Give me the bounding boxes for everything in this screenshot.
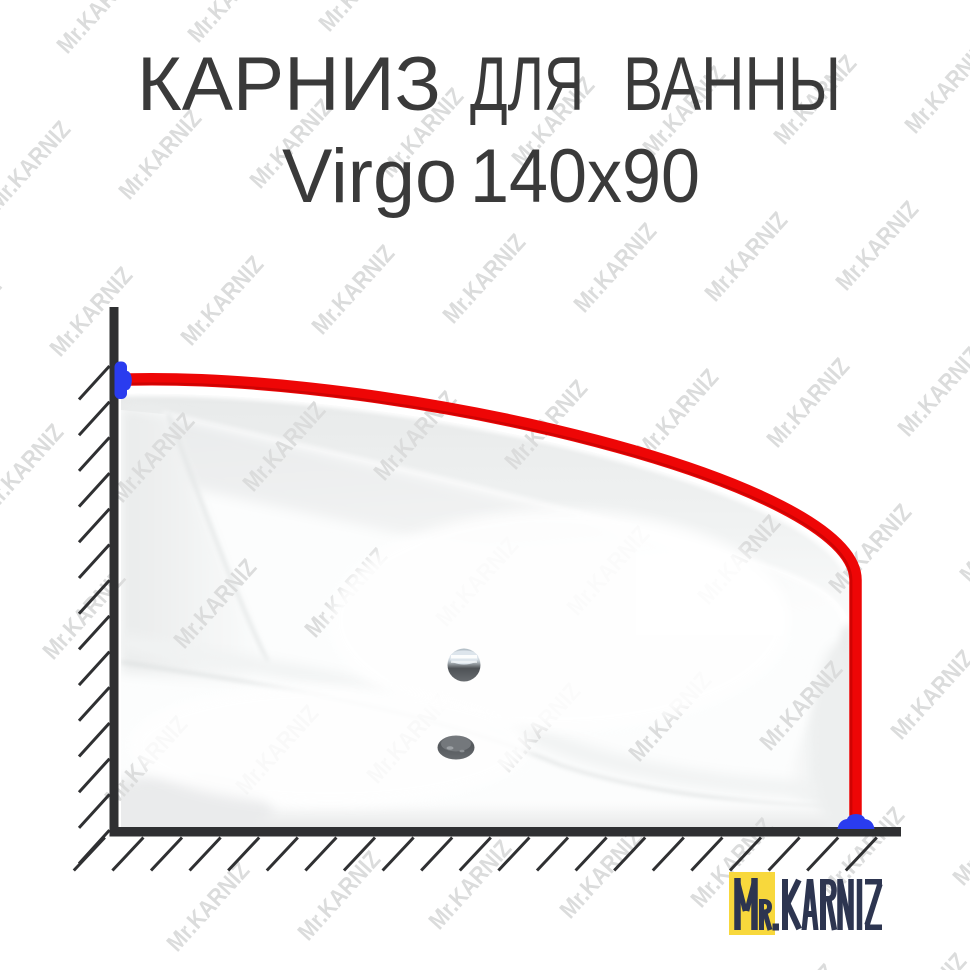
svg-text:КАРНИЗ: КАРНИЗ [137, 42, 441, 127]
svg-text:140x90: 140x90 [470, 134, 700, 219]
svg-text:ДЛЯ: ДЛЯ [470, 42, 584, 127]
svg-text:Virgo: Virgo [282, 134, 457, 219]
svg-text:ВАННЫ: ВАННЫ [623, 42, 841, 127]
